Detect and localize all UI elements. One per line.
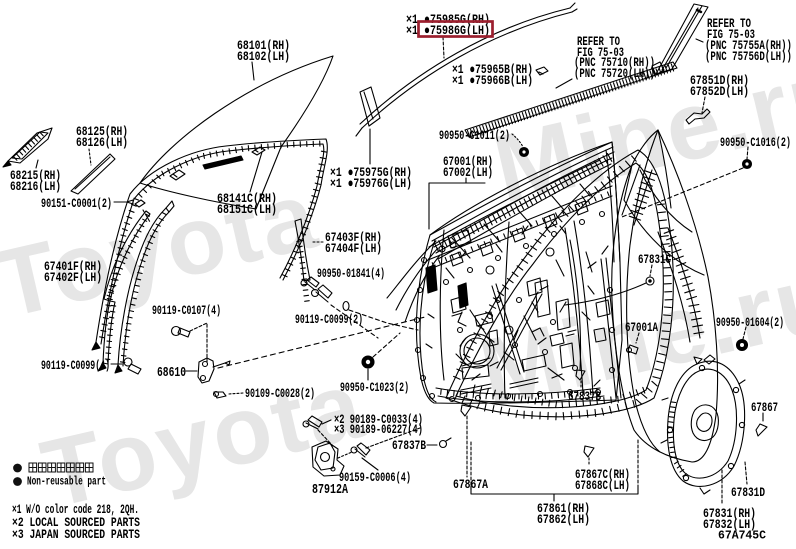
svg-text:90950-C1011(2): 90950-C1011(2) bbox=[439, 128, 510, 143]
svg-text:67A745C: 67A745C bbox=[718, 529, 766, 543]
svg-text:90950-C1016(2): 90950-C1016(2) bbox=[720, 135, 791, 150]
svg-text:67852D(LH): 67852D(LH) bbox=[690, 84, 749, 99]
svg-text:67402F(LH): 67402F(LH) bbox=[44, 270, 102, 285]
svg-text:90119-C0107(4): 90119-C0107(4) bbox=[152, 303, 221, 318]
svg-text:67868C(LH): 67868C(LH) bbox=[575, 478, 630, 493]
svg-text:90950-01604(2): 90950-01604(2) bbox=[716, 315, 784, 330]
svg-text:×3 90189-06227(4): ×3 90189-06227(4) bbox=[334, 422, 423, 437]
svg-text:(PNC 75756D(LH)): (PNC 75756D(LH)) bbox=[705, 49, 792, 64]
svg-text:90950-01841(4): 90950-01841(4) bbox=[317, 266, 385, 281]
svg-text:Non-reusable part: Non-reusable part bbox=[27, 475, 106, 489]
svg-text:67862(LH): 67862(LH) bbox=[537, 512, 590, 527]
svg-text:90119-C0099(2): 90119-C0099(2) bbox=[295, 312, 363, 327]
svg-text:87912A: 87912A bbox=[312, 482, 348, 498]
svg-text:67867A: 67867A bbox=[453, 477, 488, 492]
svg-text:(PNC 75720(LH)): (PNC 75720(LH)) bbox=[574, 66, 655, 81]
svg-text:×1 ●75976G(LH): ×1 ●75976G(LH) bbox=[330, 176, 412, 191]
svg-text:67831D: 67831D bbox=[731, 485, 765, 500]
svg-text:67837B: 67837B bbox=[392, 438, 426, 453]
svg-text:68102(LH): 68102(LH) bbox=[237, 49, 290, 64]
svg-text:67831C: 67831C bbox=[638, 252, 671, 267]
svg-text:68610: 68610 bbox=[157, 365, 186, 381]
svg-text:90119-C0099(4): 90119-C0099(4) bbox=[41, 358, 110, 373]
svg-text:68126(LH): 68126(LH) bbox=[76, 135, 128, 150]
svg-text:67837B: 67837B bbox=[568, 389, 601, 404]
svg-text:67404F(LH): 67404F(LH) bbox=[325, 241, 382, 256]
svg-text:68151C(LH): 68151C(LH) bbox=[217, 202, 277, 217]
svg-text:90950-C1023(2): 90950-C1023(2) bbox=[340, 380, 409, 395]
svg-text:90151-C0001(2): 90151-C0001(2) bbox=[41, 196, 112, 211]
svg-text:×1 ●75966B(LH): ×1 ●75966B(LH) bbox=[452, 73, 533, 88]
svg-text:90159-C0006(4): 90159-C0006(4) bbox=[339, 470, 411, 485]
svg-text:67867: 67867 bbox=[751, 400, 778, 415]
svg-text:90109-C0028(2): 90109-C0028(2) bbox=[245, 386, 315, 401]
svg-text:67001A: 67001A bbox=[625, 320, 658, 335]
svg-text:67002(LH): 67002(LH) bbox=[443, 165, 493, 180]
svg-text:68216(LH): 68216(LH) bbox=[10, 179, 61, 194]
svg-text:×3 JAPAN SOURCED PARTS: ×3 JAPAN SOURCED PARTS bbox=[12, 527, 140, 542]
